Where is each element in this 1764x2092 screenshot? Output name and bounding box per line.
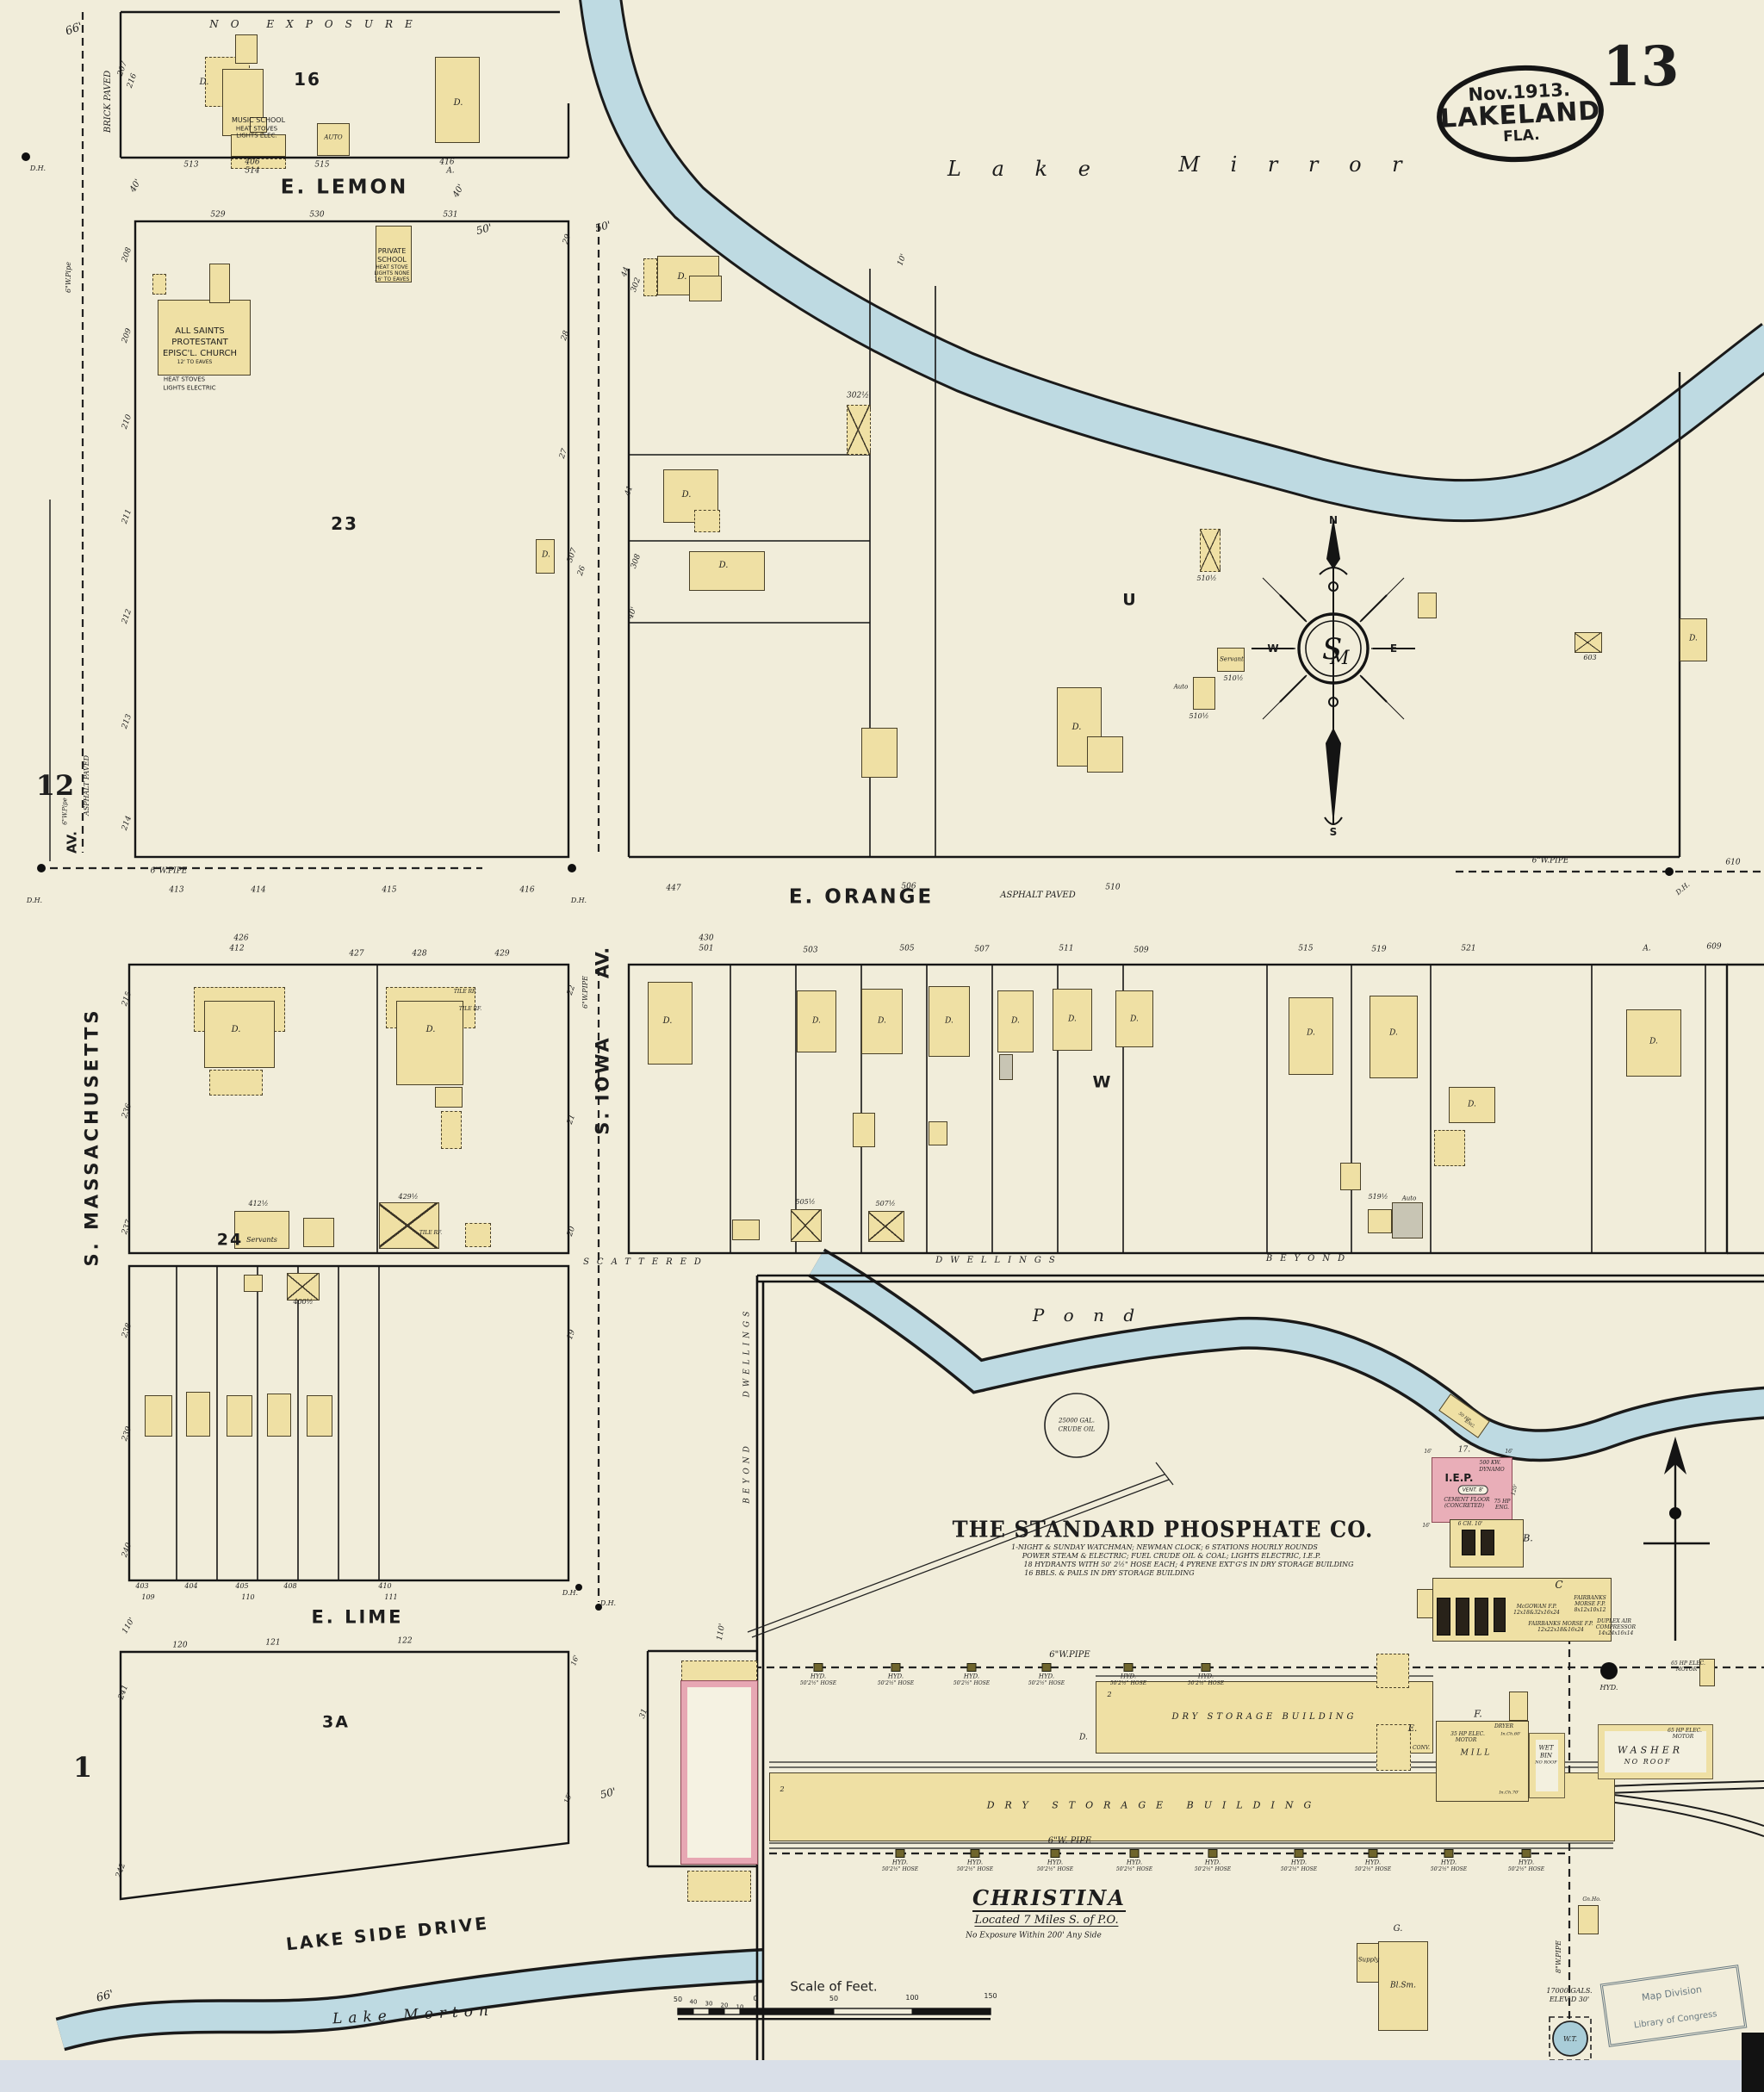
building — [441, 1111, 462, 1149]
building — [1340, 1163, 1361, 1190]
hydrant-label: HYD. — [892, 1860, 908, 1866]
map-label: D. — [1068, 1016, 1077, 1024]
map-label: D. — [682, 491, 692, 500]
map-label: A. — [446, 168, 454, 176]
map-label: In.Ch.70' — [1499, 1791, 1519, 1796]
pipe-dot — [575, 1584, 582, 1591]
map-label: 507 — [974, 947, 989, 954]
map-label: 510 — [1105, 885, 1120, 892]
building — [244, 1275, 263, 1292]
building — [1434, 1130, 1465, 1166]
map-label: ENG. — [1495, 1505, 1509, 1511]
block-16: 16 — [294, 71, 321, 88]
map-label: D.H. — [30, 165, 46, 172]
hydrant-icon — [1208, 1849, 1218, 1858]
compass-w: W — [1267, 643, 1278, 654]
map-label: HEAT STOVES — [164, 377, 205, 383]
section-u: U — [1122, 593, 1137, 609]
compass-n: N — [1329, 515, 1338, 525]
hydrant-icon — [1444, 1849, 1454, 1858]
compass-e: E — [1390, 643, 1397, 654]
map-label: LIGHTS ELEC. — [236, 133, 276, 140]
pipe-dot — [37, 864, 46, 872]
block-23: 23 — [331, 515, 358, 532]
map-label: 12x18&32x16x24 — [1513, 1611, 1560, 1616]
map-label: 510½ — [1196, 575, 1216, 582]
map-label: LIGHTS ELECTRIC — [163, 386, 215, 392]
map-label: D.H. — [600, 1600, 616, 1607]
map-label: 16' — [1505, 1450, 1512, 1455]
hydrant-label: 50'2½" HOSE — [1188, 1681, 1224, 1686]
map-label: D. — [1011, 1018, 1020, 1026]
building — [1368, 1209, 1392, 1233]
map-label: D.H. — [571, 897, 587, 904]
map-label: 120 — [172, 1642, 187, 1650]
map-label: 17000 GALS. — [1546, 1988, 1592, 1995]
hydrant-icon — [814, 1663, 823, 1672]
water-pipes — [50, 12, 1764, 2020]
hydrant-label: HYD. — [888, 1674, 904, 1680]
hydrant-icon — [1202, 1663, 1211, 1672]
map-label: 0 — [753, 1996, 757, 2002]
hydrant-label: HYD. — [811, 1674, 826, 1680]
building — [791, 1209, 822, 1242]
building — [152, 274, 166, 295]
hydrant-icon — [1124, 1663, 1134, 1672]
map-label: D. — [1130, 1016, 1139, 1024]
stamp-line-1: Map Division — [1641, 1983, 1702, 2003]
hydrant-label: 50'2½" HOSE — [800, 1681, 836, 1686]
hydrant-label: HYD. — [967, 1860, 983, 1866]
map-label: 610 — [1725, 860, 1740, 867]
map-label: D. — [678, 273, 687, 282]
building — [689, 276, 722, 301]
pipe-dot — [595, 1604, 602, 1611]
lake-mirror-label-1: L a k e — [947, 158, 1102, 179]
hydrant-label: 50'2½" HOSE — [1355, 1867, 1391, 1872]
map-label: D. — [812, 1018, 821, 1026]
building — [861, 728, 898, 778]
map-label: D. — [1072, 723, 1082, 732]
building — [929, 1121, 947, 1145]
map-label: 40 — [690, 2000, 698, 2006]
map-label: 122 — [397, 1638, 412, 1646]
map-label: 302½ — [847, 393, 869, 400]
hydrant-label: 50'2½" HOSE — [1508, 1867, 1544, 1872]
map-label: D. — [1079, 1735, 1088, 1742]
map-label: F. — [1474, 1710, 1481, 1719]
building — [1529, 1733, 1565, 1798]
map-label: 513 — [183, 162, 198, 170]
map-label: WASHER — [1618, 1746, 1683, 1755]
building — [1578, 1905, 1599, 1934]
map-label: D. — [426, 1026, 436, 1034]
map-label: D. — [663, 1017, 673, 1026]
map-label: NO ROOF — [1535, 1761, 1557, 1766]
map-label: W.T. — [1563, 2036, 1577, 2043]
svg-text:M: M — [1329, 648, 1350, 669]
iep-vent-label: VENT. 8' — [1458, 1486, 1488, 1495]
map-label: Servant — [1220, 657, 1244, 663]
building — [307, 1395, 332, 1437]
hydrant-label: 50'2½" HOSE — [953, 1681, 990, 1686]
hydrant-label: 50'2½" HOSE — [957, 1867, 993, 1872]
hydrant-label: HYD. — [1121, 1674, 1136, 1680]
hydrant-label: 50'2½" HOSE — [1281, 1867, 1317, 1872]
building — [396, 1001, 463, 1085]
map-label: B. — [1523, 1534, 1533, 1543]
building — [1376, 1724, 1411, 1771]
building — [1417, 1589, 1434, 1618]
building — [681, 1661, 757, 1681]
map-label: 6 CH. 10' — [1458, 1522, 1483, 1527]
hydrant-label: 50'2½" HOSE — [882, 1867, 918, 1872]
building — [999, 1054, 1013, 1080]
hydrant-label: 50'2½" HOSE — [1037, 1867, 1073, 1872]
building — [732, 1220, 760, 1240]
map-label: D. — [232, 1026, 241, 1034]
hydrant-icon — [1369, 1849, 1378, 1858]
pipe-dot — [1600, 1662, 1618, 1679]
hydrant-icon — [896, 1849, 905, 1858]
map-label: 6"W.PIPE — [1532, 858, 1569, 866]
hydrant-label: 50'2½" HOSE — [1028, 1681, 1065, 1686]
map-label: 416 — [519, 887, 534, 895]
hydrant-label: 50'2½" HOSE — [1431, 1867, 1467, 1872]
building — [1376, 1654, 1409, 1688]
map-label: 6"W.PIPE — [582, 976, 589, 1009]
map-label: 447 — [666, 885, 680, 893]
map-label: 404 — [184, 1583, 197, 1590]
map-label: D. — [1689, 636, 1698, 643]
map-label: 505 — [899, 946, 914, 953]
map-label: 16' — [1422, 1524, 1430, 1529]
map-label: 8"W.PIPE — [1556, 1940, 1562, 1973]
map-label: Auto — [1174, 685, 1189, 691]
map-label: 428 — [412, 951, 426, 959]
adjacent-sheet-1: 1 — [73, 1754, 92, 1781]
building — [267, 1394, 291, 1437]
block-24: 24 — [217, 1232, 243, 1249]
map-label: MILL — [1461, 1750, 1493, 1758]
map-label: WET — [1539, 1746, 1554, 1752]
building — [1193, 677, 1215, 710]
map-label: 405 — [235, 1583, 248, 1590]
map-label: SCATTERED — [583, 1258, 709, 1267]
pipe-dot — [1665, 867, 1674, 876]
phosphate-line-3: 18 HYDRANTS WITH 50' 2½" HOSE EACH; 4 PY… — [1023, 1561, 1353, 1568]
map-label: 6"W.PIPE — [1049, 1651, 1090, 1660]
hydrant-label: HYD. — [1441, 1860, 1457, 1866]
adjacent-sheet-12: 12 — [36, 772, 75, 799]
pipe-dot — [568, 864, 576, 872]
map-label: 500 KW. — [1480, 1461, 1501, 1466]
map-label: TILE RF. — [454, 990, 476, 995]
map-label: 400½ — [293, 1299, 313, 1306]
map-label: 511 — [1059, 946, 1073, 953]
pipe-dot — [22, 152, 30, 161]
map-label: PRIVATE — [378, 248, 407, 255]
building — [1437, 1598, 1450, 1636]
map-label: 501 — [699, 946, 713, 953]
map-label: D. — [1649, 1039, 1658, 1046]
building — [1418, 593, 1437, 618]
sheet-number: 13 — [1602, 40, 1679, 95]
street-e-lemon: E. LEMON — [281, 178, 409, 198]
map-label: 406 — [245, 159, 259, 167]
hydrant-label: HYD. — [1127, 1860, 1142, 1866]
phosphate-line-1: 1-NIGHT & SUNDAY WATCHMAN; NEWMAN CLOCK;… — [1011, 1544, 1318, 1551]
street-e-lime: E. LIME — [311, 1609, 403, 1627]
map-label: ASPHALT PAVED — [84, 755, 90, 816]
map-label: 531 — [443, 212, 457, 220]
building — [1087, 736, 1123, 773]
meridian-arrow — [1643, 1437, 1710, 1641]
building — [209, 264, 230, 303]
map-label: 10 — [736, 2005, 744, 2011]
building — [204, 1001, 275, 1068]
hydrant-label: 50'2½" HOSE — [1110, 1681, 1146, 1686]
map-label: 16' TO EAVES — [375, 277, 410, 282]
hydrant-icon — [1051, 1849, 1060, 1858]
building — [853, 1113, 875, 1147]
map-label: 2 — [1107, 1692, 1111, 1698]
map-label: 413 — [169, 887, 183, 895]
block-3a: 3A — [322, 1715, 350, 1731]
hydrant-label: HYD. — [1198, 1674, 1214, 1680]
map-label: 510½ — [1189, 713, 1208, 720]
compass-s: S — [1330, 827, 1338, 837]
map-label: 50 — [829, 1996, 838, 2002]
scale-bar — [678, 2008, 991, 2020]
section-w: W — [1093, 1075, 1113, 1091]
map-label: 416 — [439, 159, 454, 167]
street-s-massachusetts: S. MASSACHUSETTS — [84, 1008, 102, 1267]
hydrant-label: 50'2½" HOSE — [878, 1681, 914, 1686]
map-label: 515 — [314, 162, 329, 170]
building — [694, 510, 720, 532]
map-label: MOTOR — [1456, 1738, 1477, 1743]
building — [465, 1223, 491, 1247]
map-label: DRY STORAGE BUILDING — [1171, 1713, 1357, 1722]
map-label: D. — [454, 99, 463, 108]
map-label: E. — [1408, 1725, 1417, 1734]
hydrant-label: HYD. — [1039, 1674, 1054, 1680]
map-label: 6"W.PIPE — [151, 868, 188, 876]
street-s-iowa: S. IOWA — [594, 1035, 612, 1135]
building — [847, 405, 871, 455]
building — [1481, 1530, 1494, 1555]
building — [1200, 529, 1221, 572]
building — [1456, 1598, 1469, 1636]
map-label: 412½ — [248, 1201, 268, 1207]
map-label: 514 — [245, 168, 259, 176]
building — [435, 1087, 463, 1108]
street-s-iowa-av: AV. — [594, 947, 612, 978]
lake-morton-shore — [60, 1965, 763, 2034]
map-label: D. — [878, 1018, 886, 1026]
hydrant-label: 50'2½" HOSE — [1116, 1867, 1152, 1872]
building — [1494, 1598, 1506, 1632]
lake-mirror-label-2: M i r r o r — [1178, 154, 1413, 175]
sanborn-map-sheet: S M 13 Nov.1913. LAKELAND FLA. L a k e M… — [0, 0, 1764, 2092]
pond-shore — [817, 1263, 1764, 1445]
map-label: D.H. — [27, 897, 42, 904]
map-label: 6"W. PIPE — [1048, 1837, 1092, 1846]
hydrant-icon — [1295, 1849, 1304, 1858]
map-label: D. — [1307, 1030, 1315, 1038]
title-state: FLA. — [1503, 128, 1540, 146]
building — [687, 1871, 751, 1902]
hydrant-icon — [967, 1663, 977, 1672]
hydrant-label: HYD. — [1047, 1860, 1063, 1866]
map-label: 25000 GAL. — [1059, 1418, 1095, 1425]
map-label: C — [1555, 1580, 1562, 1590]
map-label: Servants — [246, 1237, 277, 1244]
map-label: MUSIC SCHOOL — [232, 117, 285, 124]
map-label: 530 — [309, 212, 324, 220]
map-label: 609 — [1706, 944, 1721, 952]
map-label: A. — [1643, 946, 1650, 953]
map-label: PROTESTANT — [171, 338, 227, 347]
map-label: ALL SAINTS — [175, 327, 224, 336]
building — [227, 1395, 252, 1437]
map-label: 414 — [251, 887, 265, 895]
map-label: AUTO — [324, 135, 342, 141]
map-label: HYD. — [1600, 1685, 1618, 1692]
hydrant-icon — [1522, 1849, 1531, 1858]
map-label: 519½ — [1368, 1194, 1388, 1201]
lake-mirror-shore — [599, 0, 1764, 500]
map-label: MOTOR — [1676, 1667, 1698, 1673]
building — [1509, 1692, 1528, 1721]
christina-sub: Located 7 Miles S. of P.O. — [974, 1915, 1118, 1927]
phosphate-line-2: POWER STEAM & ELECTRIC; FUEL CRUDE OIL &… — [1022, 1553, 1320, 1560]
christina-note: No Exposure Within 200' Any Side — [966, 1933, 1102, 1940]
map-label: BRICK PAVED — [104, 71, 113, 133]
map-label: 408 — [283, 1583, 296, 1590]
street-av-left: AV. — [66, 831, 79, 854]
map-label: 14x24x16x14 — [1599, 1631, 1634, 1636]
map-label: CRUDE OIL — [1059, 1427, 1096, 1433]
map-label: NO EXPOSURE — [209, 19, 425, 29]
building — [1475, 1598, 1488, 1636]
map-label: ASPHALT PAVED — [1000, 891, 1076, 900]
map-label: G. — [1394, 1925, 1403, 1934]
map-label: 20 — [721, 2003, 729, 2009]
map-label: In.Ch.60' — [1500, 1733, 1520, 1737]
map-label: 12' TO EAVES — [177, 360, 213, 365]
map-label: D.H. — [562, 1590, 578, 1597]
map-label: SCHOOL — [377, 257, 407, 264]
map-label: (CONCRETED) — [1444, 1504, 1484, 1509]
map-label: 509 — [1134, 947, 1148, 955]
phosphate-title: THE STANDARD PHOSPHATE CO. — [953, 1518, 1374, 1541]
pond-label: P o n d — [1033, 1307, 1141, 1324]
map-label: 603 — [1583, 655, 1596, 661]
map-label: D. — [200, 78, 209, 87]
map-label: Bl.Sm. — [1390, 1983, 1416, 1990]
map-label: 6"W.Pipe — [63, 798, 69, 824]
map-label: ELEV'D 30' — [1550, 1996, 1589, 2003]
map-label: Supply — [1358, 1958, 1379, 1964]
map-label: D. — [719, 562, 729, 570]
map-label: 17. — [1458, 1447, 1470, 1455]
map-label: HEAT STOVES — [236, 127, 277, 133]
map-label: 403 — [135, 1583, 148, 1590]
map-label: 506 — [901, 884, 916, 891]
map-label: 6"W.Pipe — [65, 262, 72, 293]
map-label: EPISC'L. CHURCH — [163, 350, 237, 358]
map-label: DWELLINGS — [935, 1257, 1062, 1265]
map-label: 50 — [674, 1996, 682, 2003]
map-label: 111 — [384, 1594, 397, 1601]
map-label: Auto — [1402, 1196, 1417, 1202]
map-label: 121 — [265, 1640, 280, 1648]
map-label: 110 — [241, 1594, 254, 1601]
hydrant-label: HYD. — [964, 1674, 979, 1680]
map-label: D. — [1389, 1030, 1398, 1038]
pipe-dot — [1669, 1507, 1681, 1519]
building — [1462, 1530, 1475, 1555]
building — [868, 1211, 904, 1242]
map-label: 100 — [905, 1995, 918, 2002]
phosphate-line-4: 16 BBLS. & PAILS IN DRY STORAGE BUILDING — [1024, 1570, 1194, 1577]
building — [145, 1395, 172, 1437]
map-label: 16' — [1424, 1450, 1432, 1455]
map-label: 503 — [803, 947, 817, 955]
map-label: DRYER — [1494, 1724, 1513, 1729]
map-label: NO ROOF — [1624, 1759, 1672, 1766]
map-label: 510½ — [1223, 675, 1243, 682]
map-label: 521 — [1461, 946, 1475, 953]
map-label: 412 — [229, 946, 244, 953]
map-label: BIN — [1540, 1754, 1552, 1760]
map-label: BEYOND — [1266, 1255, 1352, 1263]
map-label: 507½ — [875, 1201, 895, 1207]
building — [643, 258, 657, 296]
building — [209, 1070, 263, 1096]
map-label: 410 — [378, 1583, 391, 1590]
hydrant-icon — [1042, 1663, 1052, 1672]
hydrant-icon — [971, 1849, 980, 1858]
hydrant-label: HYD. — [1519, 1860, 1534, 1866]
map-label: 430 — [699, 935, 713, 943]
building — [681, 1681, 757, 1864]
hydrant-label: HYD. — [1365, 1860, 1381, 1866]
map-label: TILE RF. — [459, 1007, 481, 1012]
building — [303, 1218, 334, 1247]
hydrant-label: 50'2½" HOSE — [1195, 1867, 1231, 1872]
map-label: 519 — [1371, 947, 1386, 954]
map-label: D. — [1468, 1102, 1476, 1109]
scan-margin — [0, 2060, 1764, 2092]
map-label: 109 — [141, 1594, 154, 1601]
map-label: Gn.Ho. — [1582, 1897, 1600, 1903]
map-label: DRY STORAGE BUILDING — [987, 1801, 1322, 1810]
scale-title: Scale of Feet. — [790, 1981, 877, 1994]
scan-corner — [1742, 2033, 1764, 2092]
map-label: TILE RF. — [419, 1231, 442, 1236]
building — [186, 1392, 210, 1437]
compass-rose: S M — [1252, 518, 1415, 825]
map-label: DYNAMO — [1479, 1468, 1504, 1473]
map-label: 429 — [494, 951, 509, 959]
map-label: CONV. — [1413, 1746, 1430, 1751]
christina-title: CHRISTINA — [972, 1888, 1126, 1912]
map-label: 12x22x18&16x24 — [1537, 1628, 1584, 1633]
map-label: D. — [945, 1018, 953, 1026]
